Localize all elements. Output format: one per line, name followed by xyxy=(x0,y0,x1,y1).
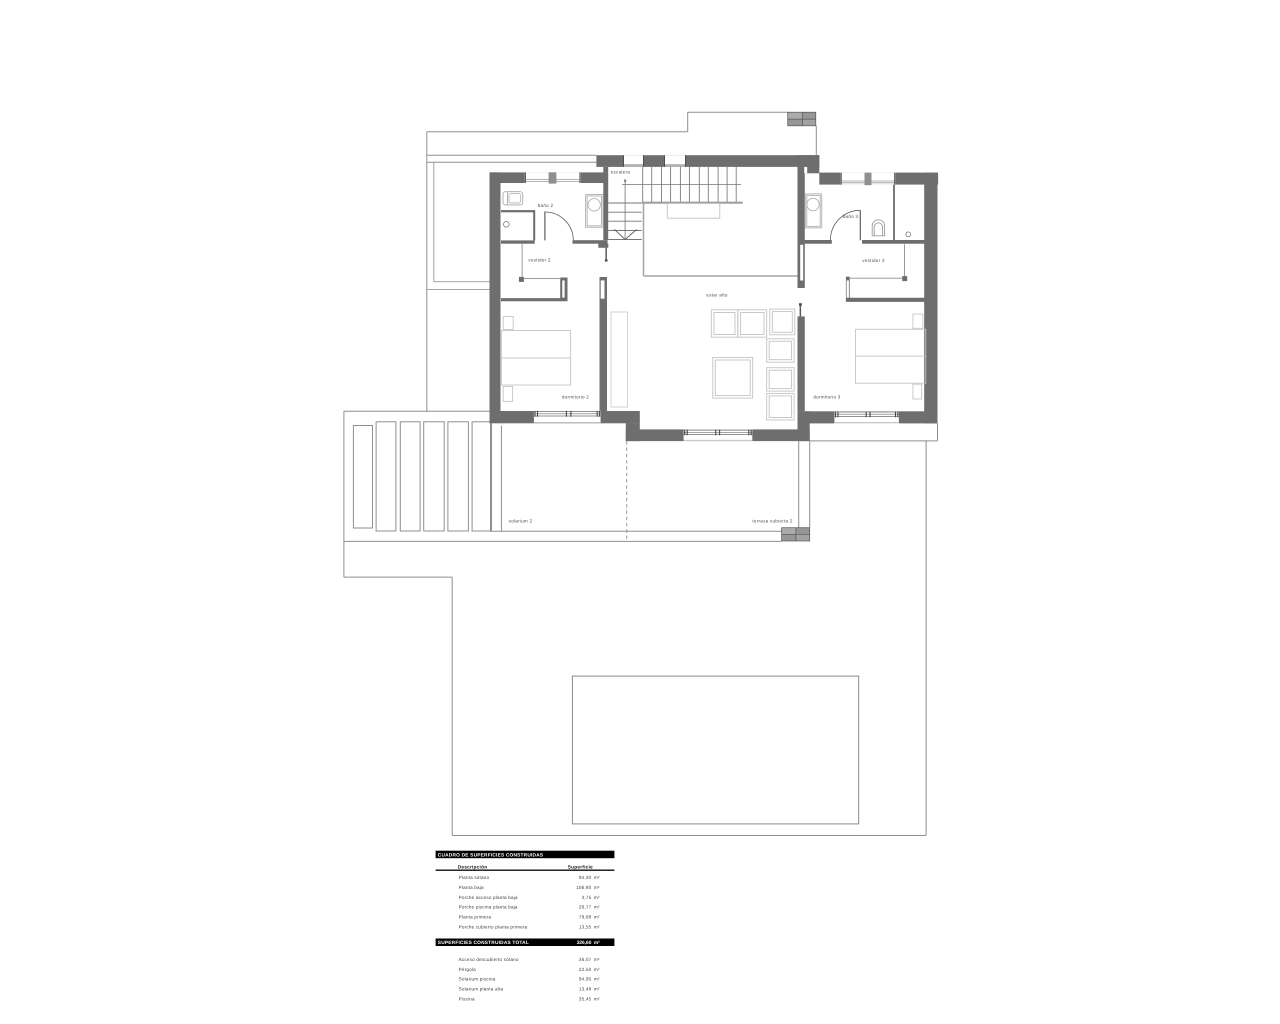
svg-text:Planta baja: Planta baja xyxy=(459,885,484,890)
svg-text:Pérgola: Pérgola xyxy=(459,967,476,972)
svg-text:13,55: 13,55 xyxy=(579,924,592,929)
svg-text:Planta sótano: Planta sótano xyxy=(459,875,490,880)
svg-text:baño 3: baño 3 xyxy=(843,214,859,219)
svg-text:Piscina: Piscina xyxy=(459,996,475,1001)
svg-text:Porche piscina planta baja: Porche piscina planta baja xyxy=(459,905,518,910)
svg-text:dormitorio 3: dormitorio 3 xyxy=(813,394,840,399)
svg-text:3,75: 3,75 xyxy=(582,895,592,900)
svg-text:CUADRO DE SUPERFICIES CONSTRUI: CUADRO DE SUPERFICIES CONSTRUIDAS xyxy=(438,852,544,858)
svg-text:m²: m² xyxy=(594,885,600,890)
svg-text:Descripción: Descripción xyxy=(458,864,488,870)
svg-text:94,30: 94,30 xyxy=(579,875,592,880)
svg-text:Planta primera: Planta primera xyxy=(459,915,492,920)
svg-text:vestidor 3: vestidor 3 xyxy=(862,258,885,263)
svg-text:Superficie: Superficie xyxy=(568,864,593,870)
svg-text:baño 2: baño 2 xyxy=(538,203,554,208)
svg-text:26,77: 26,77 xyxy=(579,905,592,910)
svg-text:35,45: 35,45 xyxy=(579,996,592,1001)
svg-text:326,60: 326,60 xyxy=(577,940,592,946)
svg-text:Solarium piscina: Solarium piscina xyxy=(459,977,496,982)
svg-text:m²: m² xyxy=(594,987,600,992)
svg-text:escalera: escalera xyxy=(611,169,631,174)
svg-text:94,95: 94,95 xyxy=(579,977,592,982)
svg-text:Solarium planta alta: Solarium planta alta xyxy=(459,987,504,992)
svg-text:vestidor 2: vestidor 2 xyxy=(528,257,551,262)
svg-text:13,48: 13,48 xyxy=(579,987,592,992)
svg-text:SUPERFICIES CONSTRUIDAS TOTAL: SUPERFICIES CONSTRUIDAS TOTAL xyxy=(438,940,529,946)
svg-text:m²: m² xyxy=(594,940,600,946)
svg-text:dormitorio 2: dormitorio 2 xyxy=(562,394,589,399)
svg-text:terraza cubierta 2: terraza cubierta 2 xyxy=(752,518,792,523)
svg-text:m²: m² xyxy=(594,895,600,900)
svg-text:36,07: 36,07 xyxy=(579,957,592,962)
svg-text:Porche acceso planta baja: Porche acceso planta baja xyxy=(459,895,518,900)
svg-text:m²: m² xyxy=(594,924,600,929)
svg-text:Porche cubierto planta primera: Porche cubierto planta primera xyxy=(459,924,528,929)
svg-text:solarium 2: solarium 2 xyxy=(509,518,533,523)
svg-text:m²: m² xyxy=(594,996,600,1001)
svg-text:estar alto: estar alto xyxy=(706,293,728,298)
svg-text:106,80: 106,80 xyxy=(576,885,591,890)
svg-text:Acceso descubierto sótano: Acceso descubierto sótano xyxy=(459,957,519,962)
svg-text:m²: m² xyxy=(594,905,600,910)
svg-text:m²: m² xyxy=(594,977,600,982)
svg-text:m²: m² xyxy=(594,875,600,880)
svg-text:m²: m² xyxy=(594,957,600,962)
svg-text:m²: m² xyxy=(594,967,600,972)
svg-text:22,50: 22,50 xyxy=(579,967,592,972)
svg-text:m²: m² xyxy=(594,915,600,920)
svg-text:79,68: 79,68 xyxy=(579,915,592,920)
